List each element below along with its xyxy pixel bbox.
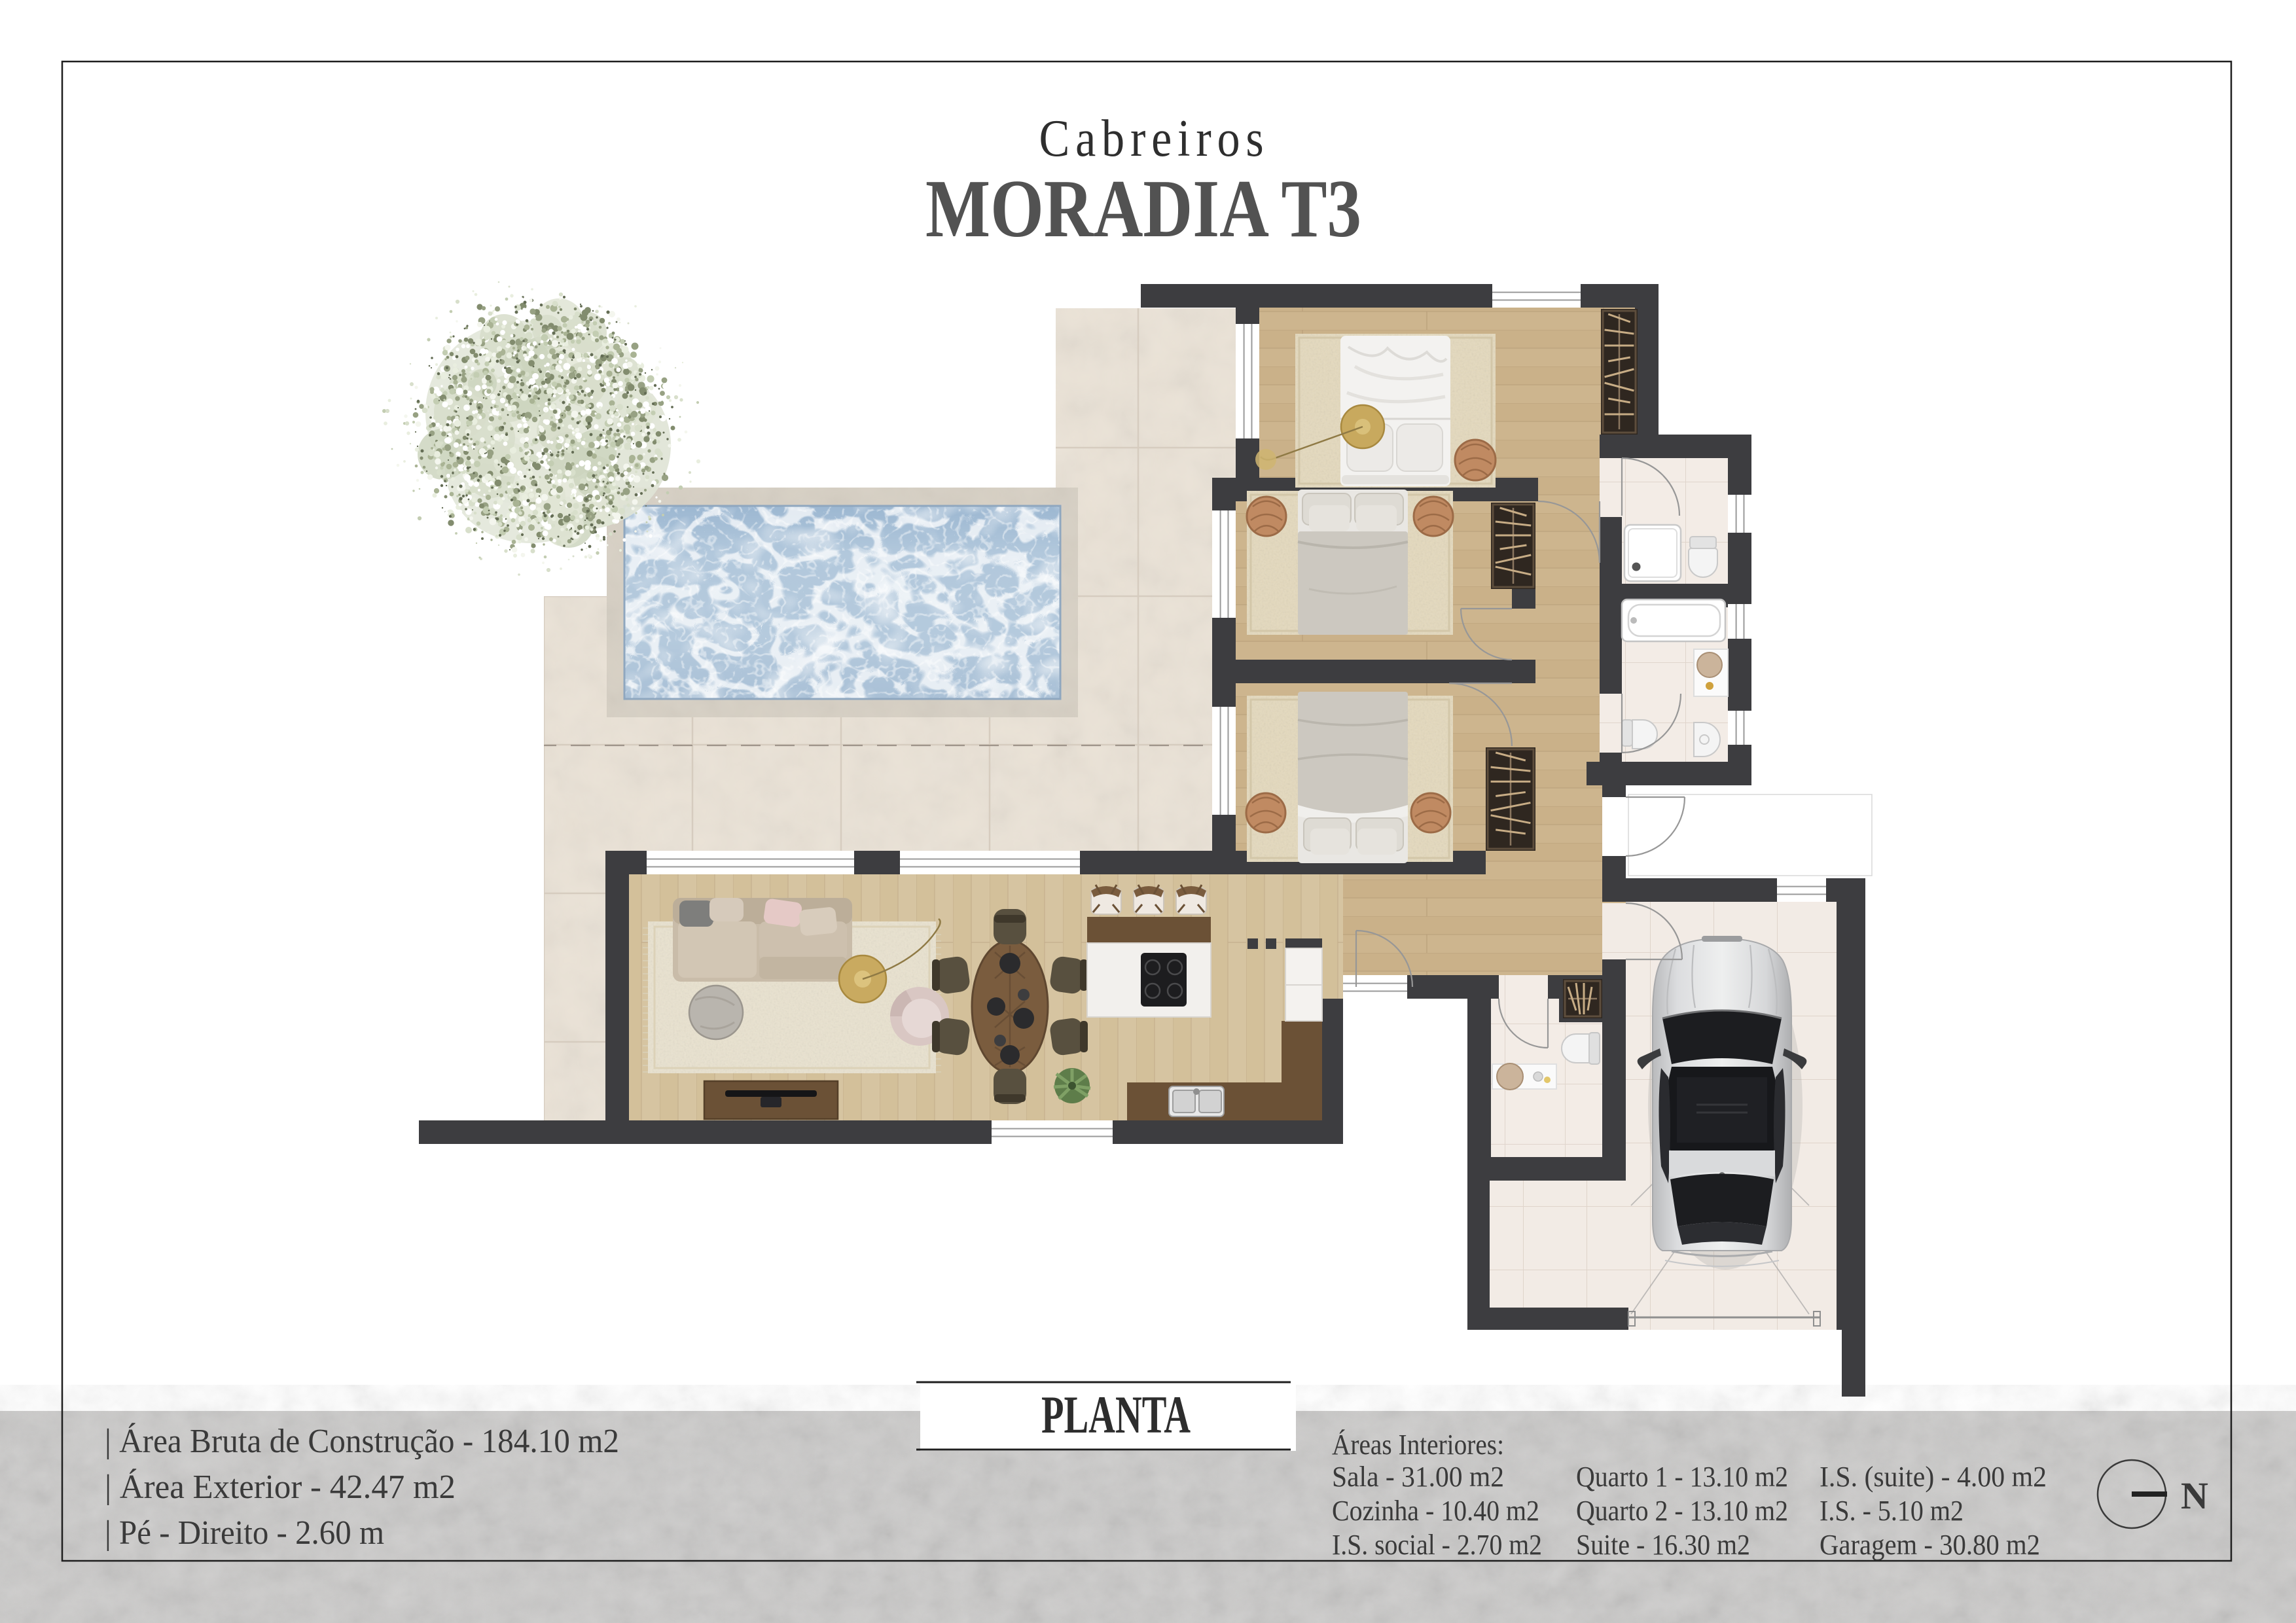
svg-text:| Área Bruta de Construção - 1: | Área Bruta de Construção - 184.10 m2	[105, 1422, 619, 1460]
svg-text:| Pé - Direito - 2.60 m: | Pé - Direito - 2.60 m	[105, 1514, 384, 1552]
svg-text:N: N	[2181, 1474, 2208, 1517]
svg-text:MORADIA T3: MORADIA T3	[925, 164, 1361, 255]
svg-text:Quarto 2 - 13.10 m2: Quarto 2 - 13.10 m2	[1576, 1495, 1788, 1527]
svg-text:Quarto 1 - 13.10 m2: Quarto 1 - 13.10 m2	[1576, 1461, 1788, 1493]
svg-text:| Área Exterior - 42.47 m2: | Área Exterior - 42.47 m2	[105, 1468, 456, 1506]
svg-text:Sala - 31.00 m2: Sala - 31.00 m2	[1332, 1461, 1504, 1493]
svg-text:Garagem - 30.80 m2: Garagem - 30.80 m2	[1820, 1529, 2040, 1561]
svg-text:Suite - 16.30 m2: Suite - 16.30 m2	[1576, 1529, 1750, 1561]
svg-text:Áreas Interiores:: Áreas Interiores:	[1332, 1429, 1504, 1461]
svg-text:PLANTA: PLANTA	[1041, 1385, 1191, 1444]
svg-text:I.S. social - 2.70 m2: I.S. social - 2.70 m2	[1332, 1529, 1542, 1561]
svg-text:I.S. (suite) - 4.00 m2: I.S. (suite) - 4.00 m2	[1820, 1461, 2047, 1493]
svg-text:Cabreiros: Cabreiros	[1039, 110, 1270, 168]
svg-text:Cozinha - 10.40 m2: Cozinha - 10.40 m2	[1332, 1495, 1539, 1527]
svg-text:I.S. - 5.10 m2: I.S. - 5.10 m2	[1820, 1495, 1964, 1527]
